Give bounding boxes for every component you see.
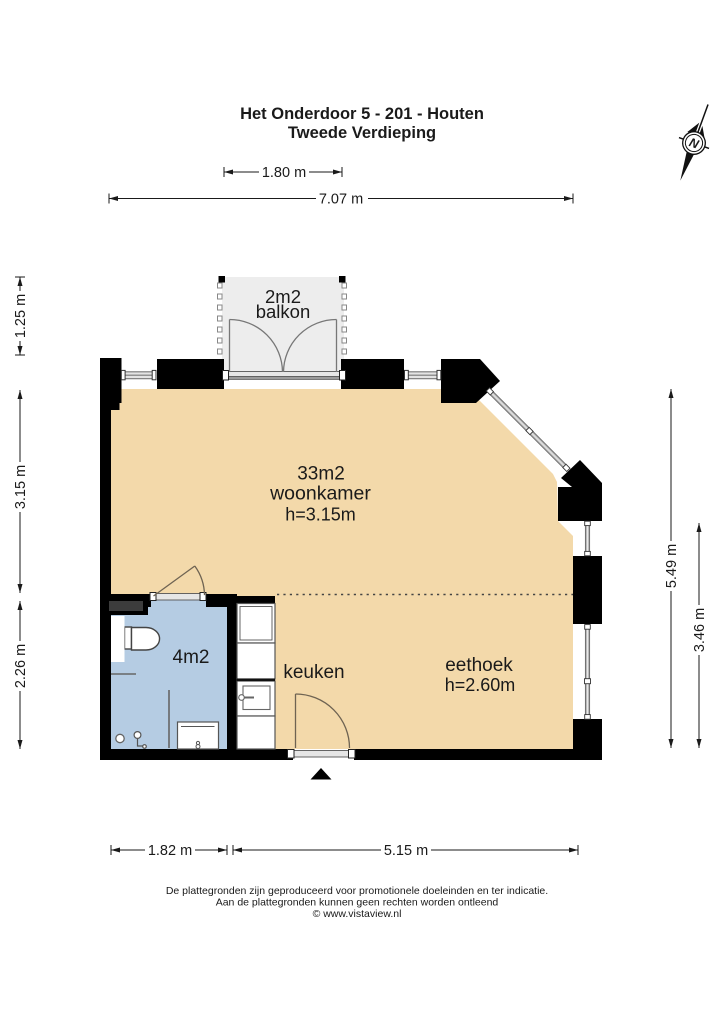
svg-text:woonkamer: woonkamer [269, 483, 371, 505]
svg-text:Aan de plattegronden kunnen ge: Aan de plattegronden kunnen geen rechten… [216, 897, 499, 909]
svg-text:h=3.15m: h=3.15m [285, 505, 356, 525]
svg-text:1.82 m: 1.82 m [148, 843, 192, 859]
svg-text:balkon: balkon [256, 301, 311, 322]
svg-text:© www.vistaview.nl: © www.vistaview.nl [313, 908, 402, 920]
svg-text:1.25 m: 1.25 m [13, 294, 29, 338]
svg-text:3.46 m: 3.46 m [692, 608, 708, 652]
svg-text:5.49 m: 5.49 m [664, 544, 680, 588]
svg-text:Tweede Verdieping: Tweede Verdieping [288, 124, 436, 142]
svg-text:Het Onderdoor 5 - 201 - Houten: Het Onderdoor 5 - 201 - Houten [240, 105, 484, 123]
svg-text:7.07 m: 7.07 m [319, 192, 363, 208]
svg-text:1.80 m: 1.80 m [262, 165, 306, 181]
svg-text:3.15 m: 3.15 m [13, 465, 29, 509]
svg-text:33m2: 33m2 [297, 464, 345, 485]
svg-text:4m2: 4m2 [173, 647, 210, 668]
svg-text:De plattegronden zijn geproduc: De plattegronden zijn geproduceerd voor … [166, 885, 548, 897]
svg-text:2.26 m: 2.26 m [13, 644, 29, 688]
svg-text:eethoek: eethoek [445, 655, 513, 676]
svg-text:5.15 m: 5.15 m [384, 843, 428, 859]
svg-text:keuken: keuken [283, 662, 344, 683]
svg-text:h=2.60m: h=2.60m [445, 675, 516, 695]
